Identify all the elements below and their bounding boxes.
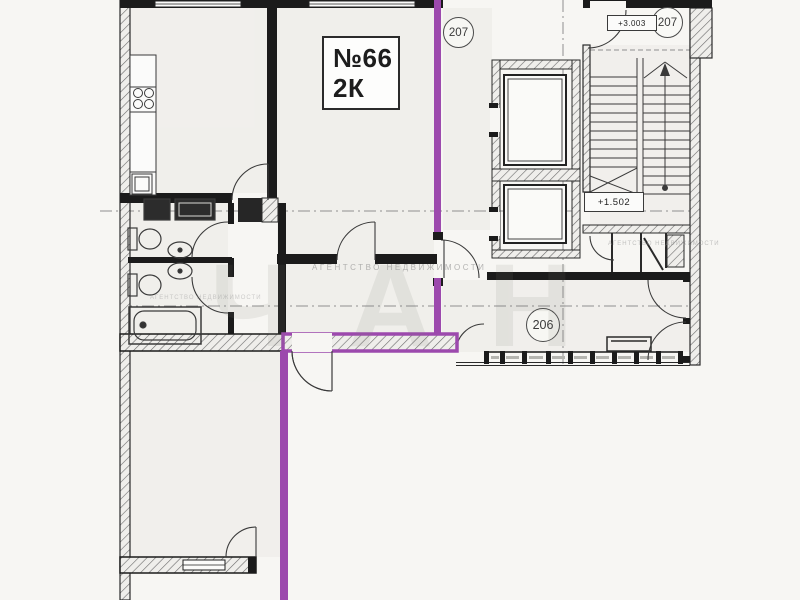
room-circle-lift-hall: 207 <box>443 17 474 48</box>
kitchen-window <box>155 1 241 7</box>
room-number-stairwell: 207 <box>658 17 677 29</box>
elevator-car-1 <box>504 75 566 165</box>
washer-cabinets <box>144 199 215 220</box>
kitchen-fixtures <box>130 55 156 195</box>
living-window <box>309 1 415 7</box>
room-number-lift-hall: 207 <box>449 27 468 39</box>
watermark-agency-text-left: АГЕНТСТВО НЕДВИЖИМОСТИ <box>150 295 262 301</box>
elevation-mark-landing: +1.502 <box>584 192 644 212</box>
apartment-type: 2К <box>333 74 398 104</box>
watermark-logo: ЧАН <box>210 238 690 374</box>
elevation-mark-upper: +3.003 <box>607 15 657 31</box>
elevator-car-2 <box>504 185 566 243</box>
floorplan-canvas: №66 2К 207 207 206 +3.003 +1.502 ЧАН АГЕ… <box>0 0 800 600</box>
apartment-number: №66 <box>333 44 398 74</box>
elevation-landing-value: +1.502 <box>598 197 630 208</box>
bedroom-bottom-wall <box>120 557 256 573</box>
elevator-block <box>489 60 580 258</box>
top-wall <box>120 0 712 8</box>
watermark-agency-text: АГЕНТСТВО НЕДВИЖИМОСТИ <box>312 263 486 272</box>
elevation-upper-value: +3.003 <box>618 19 646 28</box>
watermark-agency-text-small: АГЕНТСТВО НЕДВИЖИМОСТИ <box>608 241 720 247</box>
apartment-label-box: №66 2К <box>322 36 400 110</box>
